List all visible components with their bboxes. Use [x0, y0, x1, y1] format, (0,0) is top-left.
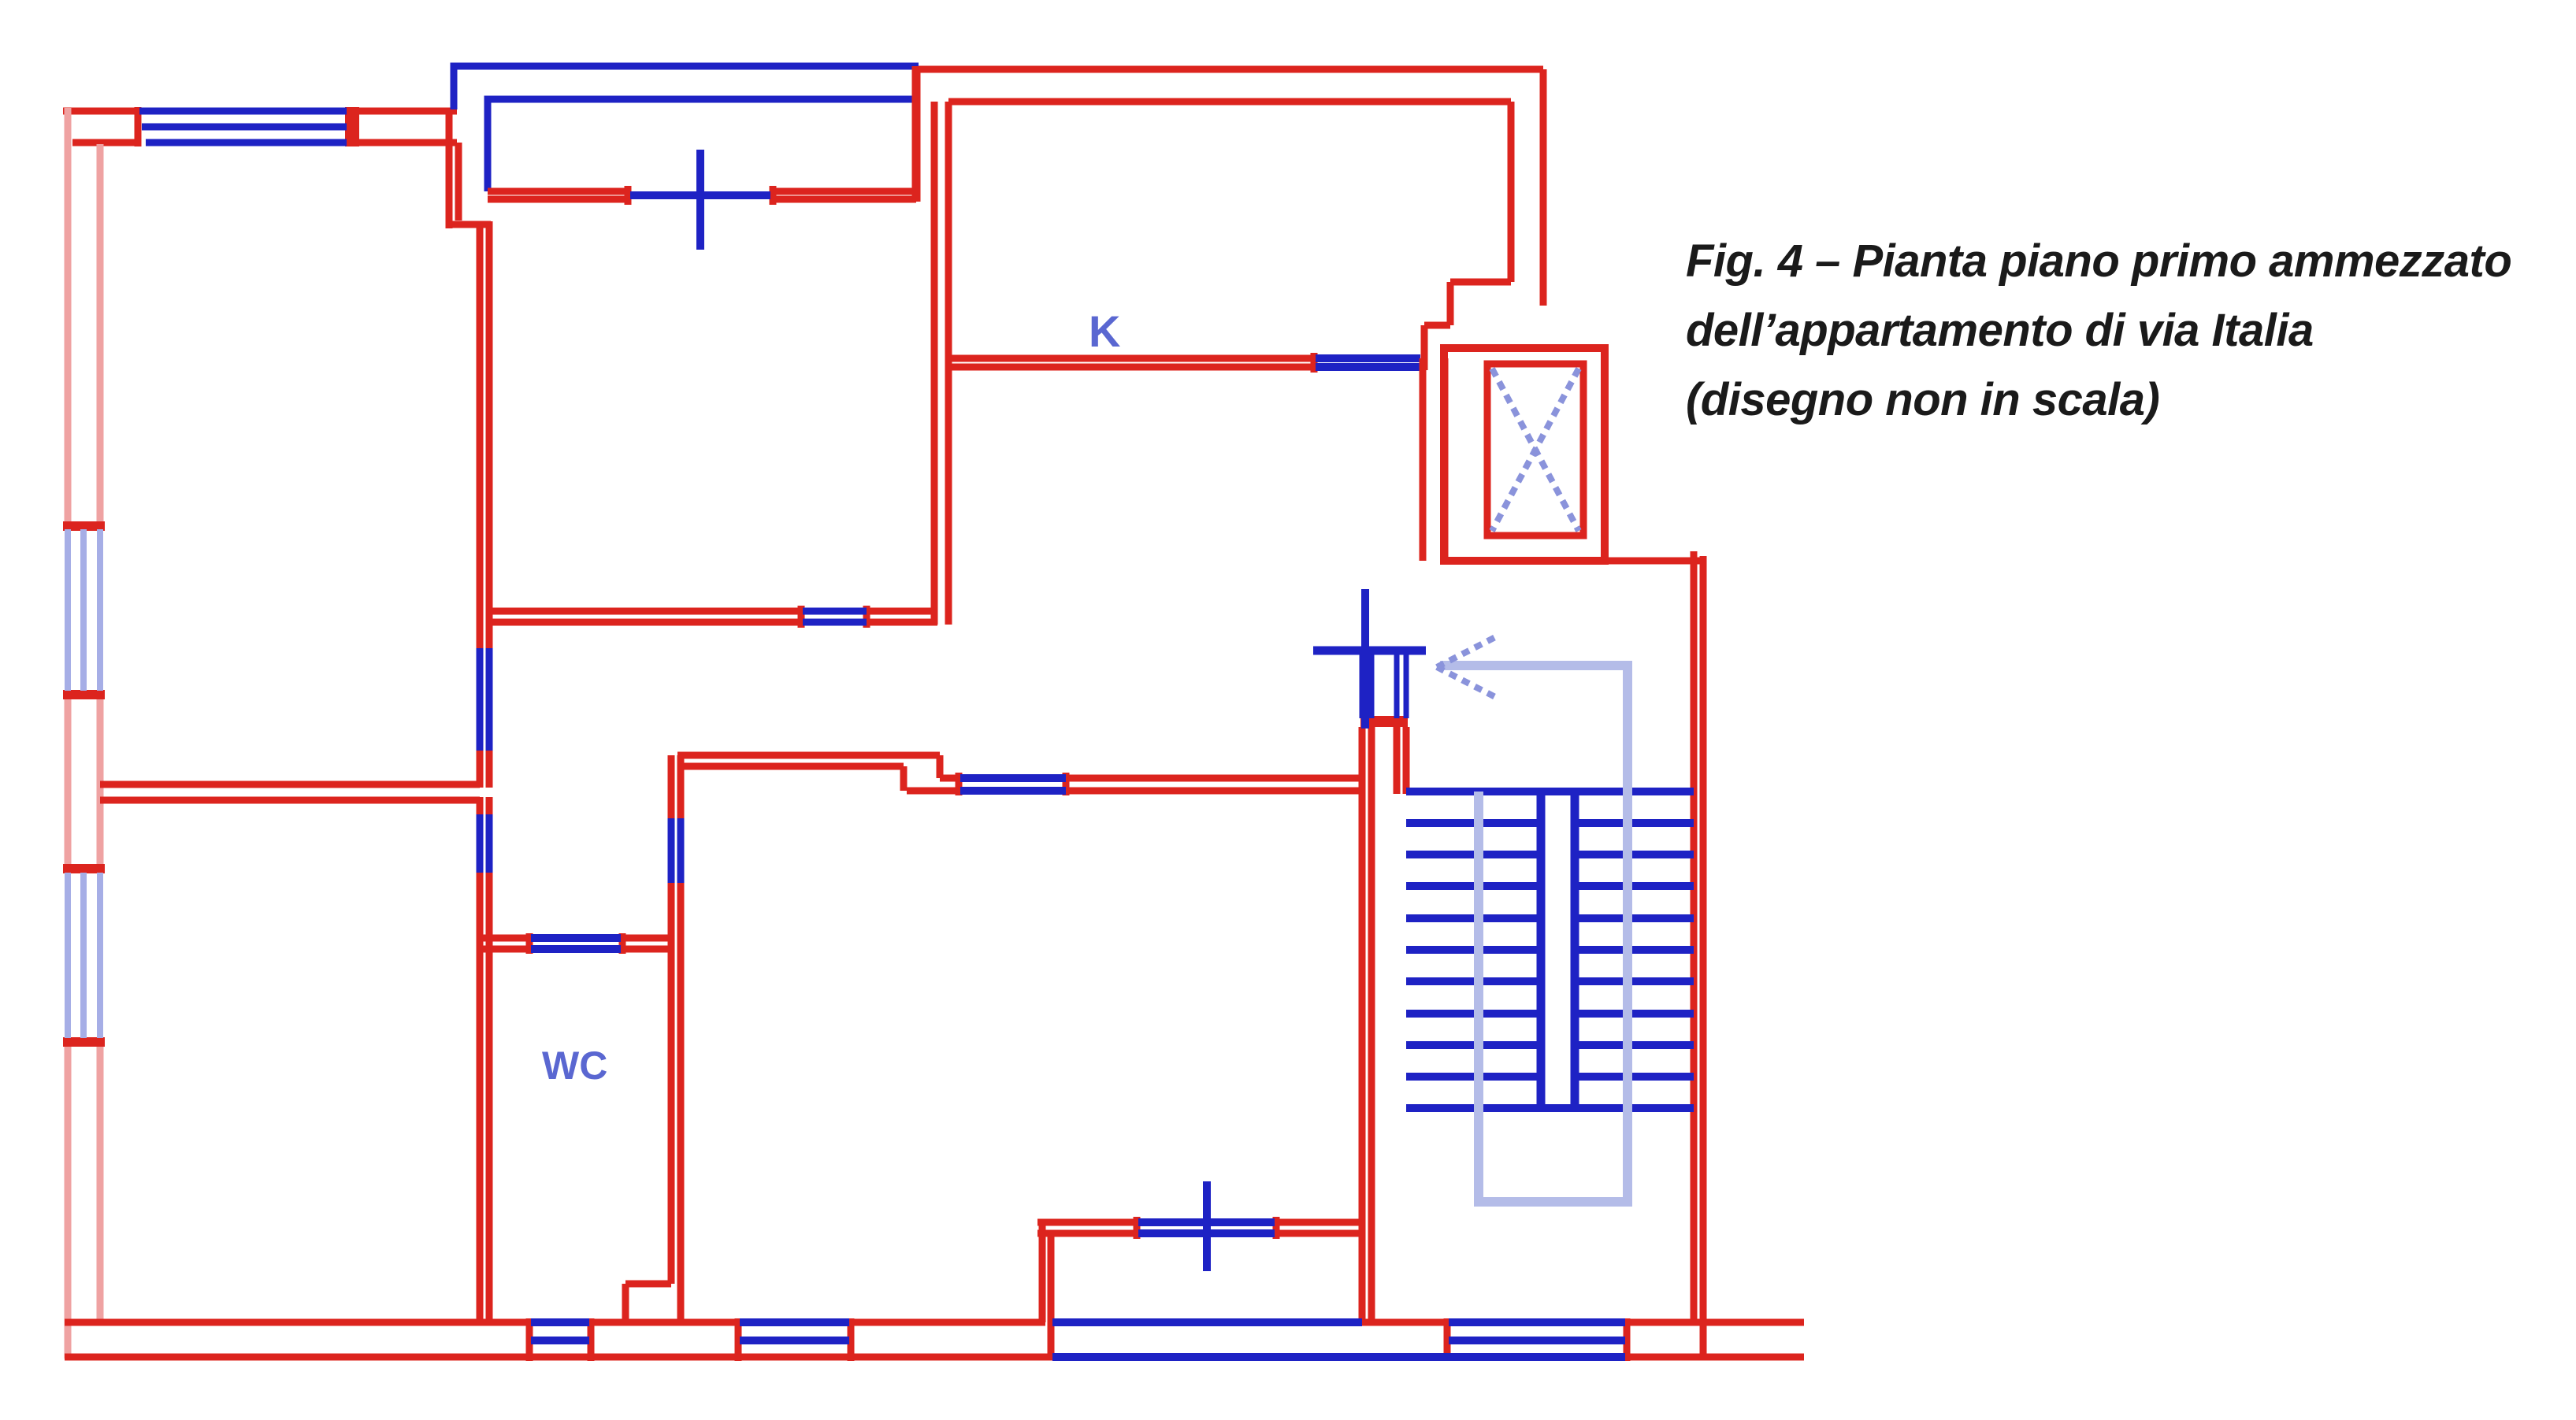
caption-line-1: Fig. 4 – Pianta piano primo ammezzato	[1686, 227, 2572, 296]
living-room-side-door-icon	[671, 818, 681, 883]
bottom-wall-blue-segments	[531, 1322, 1625, 1357]
window-cross-icon-bottom	[1138, 1181, 1275, 1271]
top-wall-window-icon	[139, 111, 347, 143]
balcony-railing	[454, 66, 919, 191]
left-exterior-wall	[68, 108, 100, 1359]
recess-wall	[1037, 1217, 1362, 1357]
stair-block-walls	[1360, 551, 1703, 1357]
left-wall-window-icon-lower	[68, 873, 100, 1038]
kitchen-label: K	[1089, 306, 1120, 356]
entrance-door-icon	[1313, 589, 1426, 729]
floor-plan-drawing: K WC	[0, 0, 2576, 1420]
room-door-icon-lower-left	[480, 814, 489, 873]
elevator	[1423, 348, 1605, 561]
elevator-x-icon	[1492, 369, 1579, 531]
topleft-room-right-wall	[446, 111, 491, 941]
wc-label: WC	[542, 1044, 607, 1088]
wc-door-icon	[531, 938, 621, 949]
living-room-door-icon	[960, 778, 1066, 791]
left-wall-window-icon-upper	[68, 529, 100, 691]
figure-caption: Fig. 4 – Pianta piano primo ammezzato de…	[1686, 227, 2572, 435]
bottomleft-room-top-wall	[100, 784, 480, 800]
wc-walls	[480, 933, 671, 1324]
hall-door-icon-top	[803, 611, 867, 622]
hall-top-wall	[489, 606, 937, 628]
stairs	[1406, 792, 1694, 1108]
hall-door-icon-left	[480, 648, 489, 751]
caption-line-3: (disegno non in scala)	[1686, 365, 2572, 435]
caption-line-2: dell’appartamento di via Italia	[1686, 296, 2572, 365]
figure-page: K WC Fig. 4 – Pianta piano primo ammezza…	[0, 0, 2576, 1420]
window-cross-icon-top	[630, 150, 770, 250]
kitchen-door-icon	[1316, 358, 1420, 367]
